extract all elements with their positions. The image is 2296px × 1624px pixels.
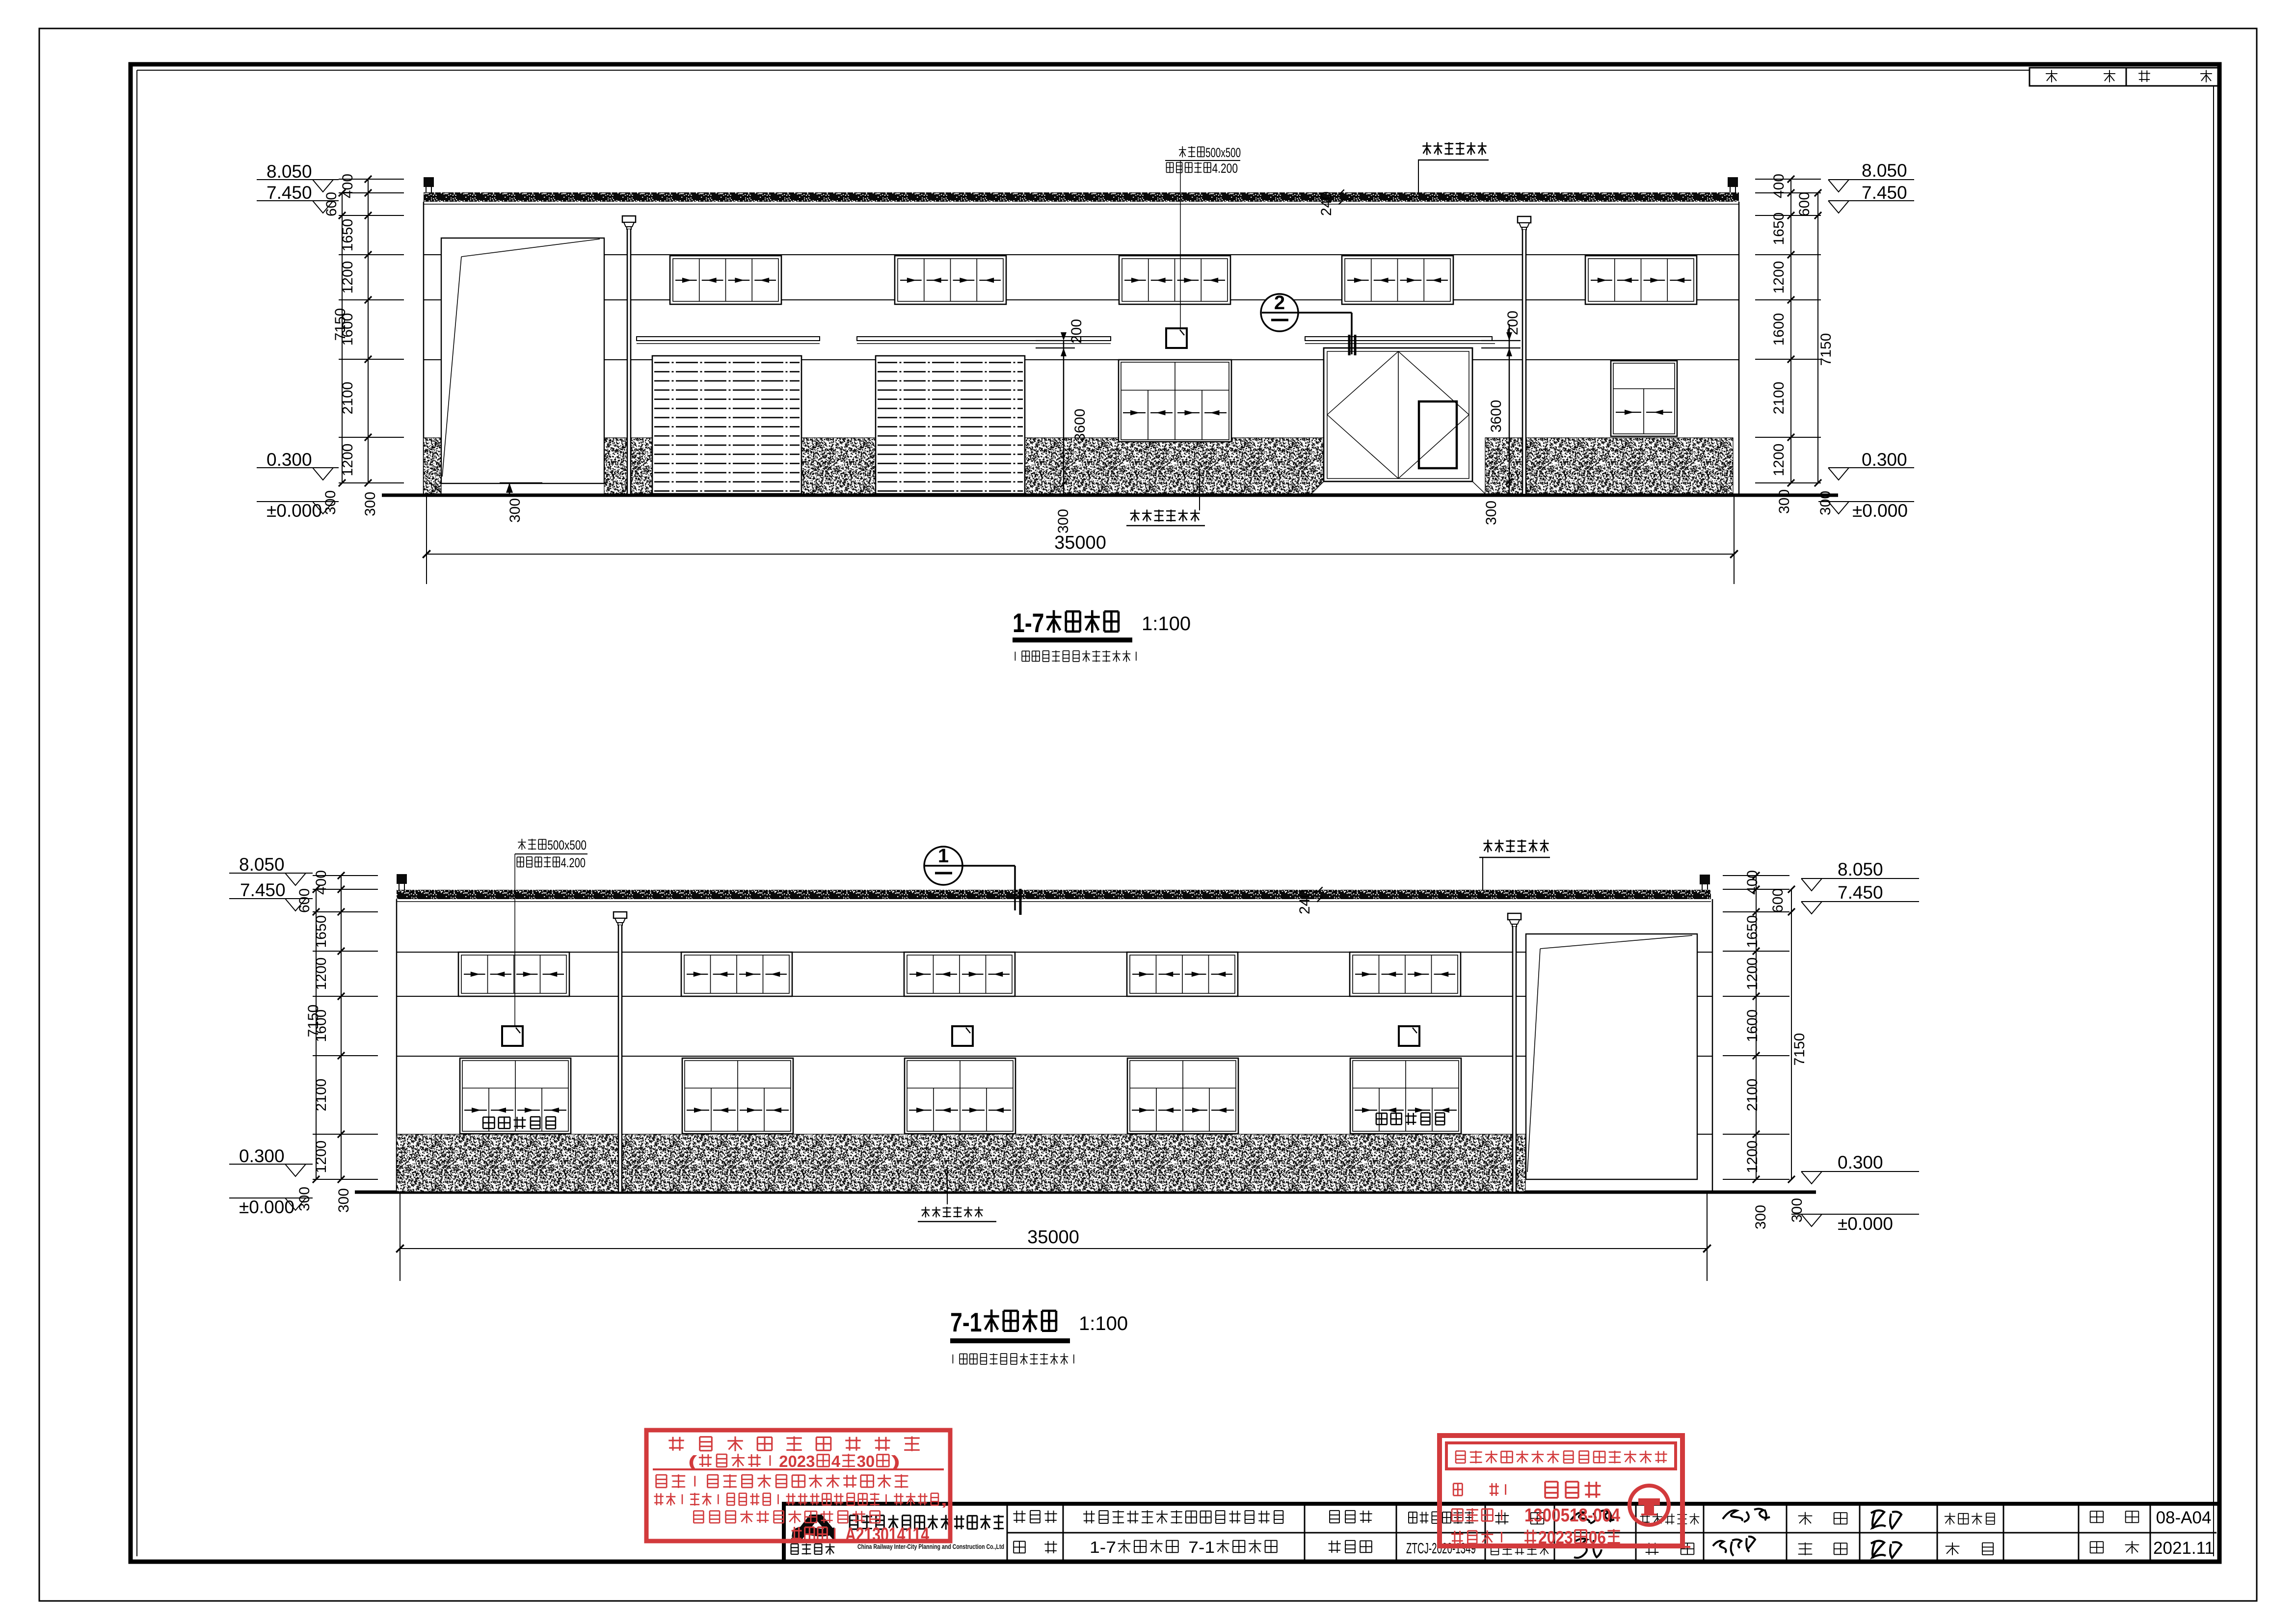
svg-text:1200: 1200	[1744, 958, 1761, 990]
svg-text:7150: 7150	[305, 1005, 321, 1038]
svg-text:0.300: 0.300	[267, 450, 312, 470]
svg-text:0.300: 0.300	[1862, 450, 1907, 470]
svg-text:2: 2	[1274, 292, 1285, 314]
svg-text:35000: 35000	[1027, 1227, 1079, 1248]
svg-text:600: 600	[323, 192, 340, 216]
svg-text:400: 400	[1744, 870, 1761, 895]
svg-text:7.450: 7.450	[240, 880, 286, 900]
svg-text:4.200: 4.200	[561, 855, 586, 870]
svg-text:2023: 2023	[779, 1452, 815, 1470]
svg-text:300: 300	[362, 492, 378, 516]
svg-text:3600: 3600	[1488, 400, 1504, 433]
svg-text:3600: 3600	[1072, 409, 1088, 442]
svg-text:400: 400	[340, 174, 356, 198]
svg-text:7.450: 7.450	[267, 183, 312, 203]
svg-text:240: 240	[1297, 890, 1313, 914]
svg-text:400: 400	[313, 870, 329, 895]
svg-text:200: 200	[1068, 319, 1085, 344]
svg-text:240: 240	[1318, 191, 1335, 216]
svg-text:7150: 7150	[1818, 333, 1834, 366]
svg-text:1:100: 1:100	[1079, 1313, 1128, 1334]
svg-text:08-A04: 08-A04	[2156, 1508, 2212, 1527]
svg-text:1650: 1650	[313, 915, 329, 948]
svg-text:,: ,	[941, 1491, 947, 1509]
svg-text:600: 600	[1770, 888, 1786, 913]
svg-text:1: 1	[938, 845, 949, 867]
svg-text:2100: 2100	[1744, 1079, 1761, 1112]
svg-text:±0.000: ±0.000	[267, 501, 322, 521]
svg-text:7150: 7150	[1791, 1033, 1808, 1066]
svg-text:0.300: 0.300	[1838, 1152, 1883, 1172]
svg-text:1200: 1200	[1771, 261, 1787, 294]
svg-text:500x500: 500x500	[547, 838, 587, 852]
svg-text:600: 600	[1796, 192, 1813, 216]
svg-text:1-7: 1-7	[1013, 608, 1044, 638]
svg-text:400: 400	[1771, 174, 1787, 198]
svg-text:7-1: 7-1	[950, 1307, 982, 1337]
svg-text:4.200: 4.200	[1212, 161, 1238, 176]
svg-text:1650: 1650	[1771, 213, 1787, 245]
svg-text:(: (	[688, 1452, 697, 1470]
svg-text:2021.11: 2021.11	[2153, 1539, 2214, 1558]
svg-text:500x500: 500x500	[1205, 145, 1241, 160]
svg-text:2100: 2100	[1771, 382, 1787, 415]
svg-text:300: 300	[1055, 509, 1071, 533]
svg-text:1200: 1200	[1771, 444, 1787, 477]
svg-text:±0.000: ±0.000	[1838, 1214, 1893, 1234]
svg-text:300: 300	[1817, 491, 1834, 515]
svg-text:06: 06	[1589, 1527, 1606, 1547]
svg-text:1200: 1200	[340, 261, 356, 294]
svg-text:1600: 1600	[1771, 313, 1787, 346]
svg-text:1600: 1600	[1744, 1010, 1761, 1042]
svg-text:7150: 7150	[332, 308, 348, 341]
svg-text:300: 300	[1753, 1205, 1769, 1229]
svg-text:300: 300	[1483, 501, 1499, 525]
svg-text:35000: 35000	[1054, 532, 1106, 553]
svg-text:1200: 1200	[313, 958, 329, 990]
svg-text:±0.000: ±0.000	[1852, 501, 1908, 521]
svg-text:1650: 1650	[340, 219, 356, 252]
svg-text:300: 300	[507, 498, 523, 523]
svg-text:300: 300	[1776, 489, 1792, 514]
svg-text:1200: 1200	[313, 1141, 329, 1173]
svg-text:A213014114: A213014114	[845, 1524, 930, 1545]
svg-text:8.050: 8.050	[267, 161, 312, 182]
svg-text:200: 200	[1505, 311, 1521, 335]
svg-text:1300518-004: 1300518-004	[1524, 1505, 1620, 1526]
svg-text:2100: 2100	[313, 1079, 329, 1112]
svg-text:8.050: 8.050	[239, 854, 285, 875]
svg-text:300: 300	[1789, 1198, 1805, 1223]
svg-text:1200: 1200	[1744, 1141, 1761, 1173]
svg-text:±0.000: ±0.000	[239, 1197, 294, 1217]
svg-text:0.300: 0.300	[239, 1146, 285, 1166]
svg-text:1:100: 1:100	[1142, 613, 1191, 635]
svg-text:7.450: 7.450	[1838, 882, 1883, 903]
svg-text:8.050: 8.050	[1862, 160, 1907, 181]
svg-text:7.450: 7.450	[1862, 183, 1907, 203]
svg-text:1200: 1200	[340, 444, 356, 477]
svg-text:7-1: 7-1	[1188, 1538, 1215, 1556]
svg-text:2100: 2100	[340, 382, 356, 415]
svg-text:300: 300	[336, 1188, 352, 1213]
svg-text:8.050: 8.050	[1838, 859, 1883, 879]
svg-text:4: 4	[831, 1452, 841, 1470]
svg-text:1-7: 1-7	[1090, 1538, 1116, 1556]
svg-text:): )	[891, 1452, 900, 1470]
svg-text:1650: 1650	[1744, 915, 1761, 948]
svg-text:30: 30	[857, 1452, 875, 1470]
